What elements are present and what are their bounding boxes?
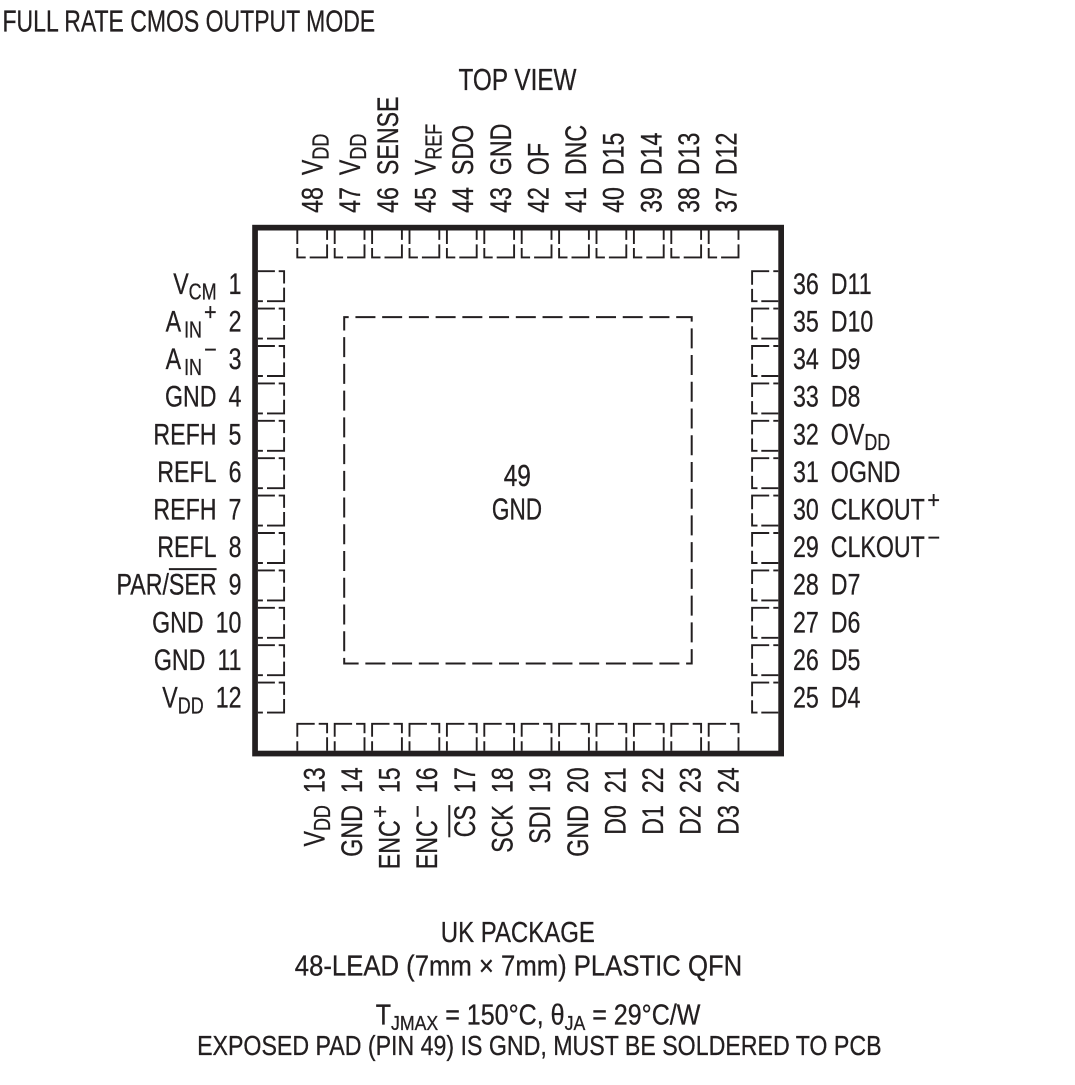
svg-text:8: 8: [229, 530, 242, 564]
svg-text:19: 19: [523, 767, 557, 793]
svg-text:GND: GND: [484, 124, 518, 176]
svg-text:38: 38: [672, 187, 706, 213]
svg-text:OV: OV: [831, 417, 865, 451]
svg-text:CLKOUT: CLKOUT: [831, 530, 925, 564]
svg-text:ENC: ENC: [410, 820, 444, 869]
svg-text:D4: D4: [831, 681, 861, 715]
svg-text:45: 45: [409, 187, 443, 213]
svg-text:22: 22: [636, 767, 670, 793]
svg-text:27: 27: [793, 605, 819, 639]
svg-text:43: 43: [484, 187, 518, 213]
svg-text:D13: D13: [672, 133, 706, 176]
svg-text:39: 39: [635, 187, 669, 213]
svg-text:7: 7: [229, 493, 242, 527]
svg-text:40: 40: [597, 187, 631, 213]
svg-text:16: 16: [410, 767, 444, 793]
svg-text:DD: DD: [308, 134, 334, 160]
svg-text:SDI: SDI: [523, 805, 557, 844]
svg-text:GND: GND: [152, 605, 204, 639]
svg-text:A: A: [166, 305, 182, 339]
svg-text:3: 3: [229, 342, 242, 376]
svg-text:SENSE: SENSE: [371, 96, 405, 175]
svg-text:12: 12: [216, 681, 242, 715]
svg-text:EXPOSED PAD (PIN 49) IS GND, M: EXPOSED PAD (PIN 49) IS GND, MUST BE SOL…: [197, 1031, 881, 1061]
svg-text:33: 33: [793, 380, 819, 414]
svg-text:26: 26: [793, 643, 819, 677]
svg-text:OF: OF: [522, 143, 556, 175]
svg-text:30: 30: [793, 493, 819, 527]
svg-text:A: A: [166, 342, 182, 376]
svg-text:46: 46: [371, 187, 405, 213]
svg-text:D3: D3: [711, 805, 745, 835]
svg-text:GND: GND: [165, 380, 217, 414]
svg-text:D10: D10: [831, 305, 874, 339]
svg-text:V: V: [333, 160, 367, 176]
svg-text:23: 23: [674, 767, 708, 793]
svg-text:T: T: [376, 999, 391, 1031]
svg-text:11: 11: [217, 643, 241, 677]
svg-text:UK PACKAGE: UK PACKAGE: [441, 916, 595, 949]
svg-text:+: +: [366, 805, 393, 818]
svg-text:15: 15: [373, 767, 407, 793]
svg-text:−: −: [404, 805, 431, 818]
svg-text:20: 20: [561, 767, 595, 793]
svg-text:IN: IN: [184, 317, 202, 343]
svg-text:D12: D12: [710, 133, 744, 176]
svg-text:D2: D2: [674, 805, 708, 835]
svg-text:36: 36: [793, 267, 819, 301]
svg-text:+: +: [927, 486, 940, 513]
svg-text:−: −: [927, 523, 940, 550]
svg-text:TOP VIEW: TOP VIEW: [459, 62, 577, 96]
svg-text:DD: DD: [346, 134, 372, 160]
svg-text:SER: SER: [169, 568, 217, 602]
svg-text:V: V: [173, 267, 189, 301]
svg-text:24: 24: [711, 767, 745, 793]
svg-text:REFL: REFL: [157, 455, 216, 489]
svg-text:31: 31: [793, 455, 819, 489]
svg-text:= 150°C,: = 150°C,: [438, 999, 550, 1031]
svg-text:FULL RATE CMOS OUTPUT MODE: FULL RATE CMOS OUTPUT MODE: [3, 3, 376, 38]
svg-text:14: 14: [335, 767, 369, 793]
svg-text:= 29°C/W: = 29°C/W: [585, 999, 701, 1031]
svg-text:41: 41: [559, 187, 593, 213]
svg-text:SDO: SDO: [446, 125, 480, 175]
svg-text:34: 34: [793, 342, 819, 376]
svg-text:44: 44: [446, 187, 480, 213]
svg-text:1: 1: [229, 267, 242, 301]
svg-text:−: −: [204, 335, 217, 362]
svg-text:29: 29: [793, 530, 819, 564]
svg-text:D1: D1: [636, 805, 670, 835]
svg-text:5: 5: [229, 417, 242, 451]
svg-text:32: 32: [793, 417, 819, 451]
svg-text:DD: DD: [178, 693, 204, 719]
svg-text:CLKOUT: CLKOUT: [831, 493, 925, 527]
svg-text:18: 18: [486, 767, 520, 793]
svg-text:47: 47: [333, 187, 367, 213]
svg-text:D11: D11: [831, 267, 872, 301]
svg-text:+: +: [204, 298, 217, 325]
svg-text:21: 21: [599, 767, 633, 793]
svg-text:2: 2: [229, 305, 242, 339]
svg-text:D0: D0: [599, 805, 633, 835]
svg-text:SCK: SCK: [486, 805, 520, 853]
svg-text:D15: D15: [597, 133, 631, 176]
svg-text:REFH: REFH: [153, 493, 216, 527]
svg-text:48: 48: [296, 187, 330, 213]
svg-text:D5: D5: [831, 643, 861, 677]
svg-text:D14: D14: [635, 132, 669, 175]
svg-text:4: 4: [229, 380, 242, 414]
svg-text:DD: DD: [864, 430, 890, 456]
svg-text:DNC: DNC: [559, 125, 593, 175]
svg-text:13: 13: [297, 767, 331, 793]
svg-text:V: V: [409, 160, 443, 176]
svg-text:49: 49: [504, 458, 531, 492]
svg-text:REFH: REFH: [153, 417, 216, 451]
svg-text:REFL: REFL: [157, 530, 216, 564]
svg-text:D6: D6: [831, 605, 861, 639]
svg-text:17: 17: [448, 767, 482, 793]
svg-text:D7: D7: [831, 568, 861, 602]
svg-text:V: V: [297, 831, 331, 847]
svg-text:37: 37: [710, 187, 744, 213]
svg-text:PAR/: PAR/: [117, 568, 170, 602]
svg-text:48-LEAD (7mm × 7mm) PLASTIC QF: 48-LEAD (7mm × 7mm) PLASTIC QFN: [295, 950, 742, 981]
svg-text:REF: REF: [421, 124, 447, 160]
svg-text:OGND: OGND: [831, 455, 901, 489]
svg-text:GND: GND: [492, 492, 542, 526]
svg-text:28: 28: [793, 568, 819, 602]
svg-text:CS: CS: [448, 805, 482, 837]
svg-text:42: 42: [522, 187, 556, 213]
svg-text:DD: DD: [310, 805, 336, 831]
svg-text:θ: θ: [551, 999, 565, 1031]
svg-text:D8: D8: [831, 380, 861, 414]
svg-text:V: V: [162, 681, 178, 715]
svg-text:GND: GND: [335, 805, 369, 857]
svg-text:35: 35: [793, 305, 819, 339]
svg-text:25: 25: [793, 681, 819, 715]
svg-text:9: 9: [229, 568, 242, 602]
svg-text:IN: IN: [184, 355, 202, 381]
svg-text:6: 6: [229, 455, 242, 489]
svg-text:GND: GND: [561, 805, 595, 857]
svg-text:ENC: ENC: [373, 820, 407, 869]
svg-text:D9: D9: [831, 342, 861, 376]
svg-text:10: 10: [216, 605, 242, 639]
svg-text:GND: GND: [154, 643, 206, 677]
svg-text:V: V: [296, 160, 330, 176]
